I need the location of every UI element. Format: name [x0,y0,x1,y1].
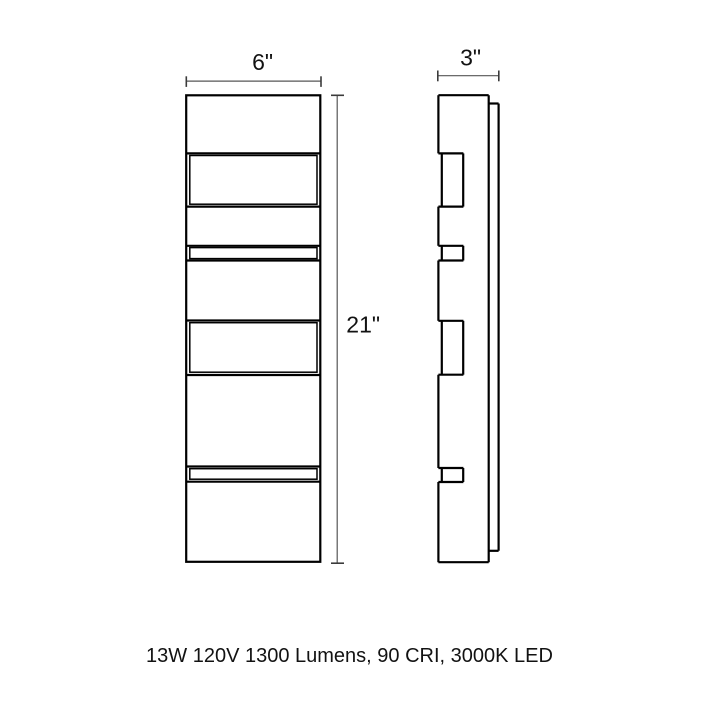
svg-text:3": 3" [460,44,481,70]
svg-text:13W 120V 1300 Lumens, 90 CRI,: 13W 120V 1300 Lumens, 90 CRI, 3000K LED [146,645,553,667]
svg-text:6": 6" [252,49,273,75]
svg-text:21": 21" [346,312,380,338]
